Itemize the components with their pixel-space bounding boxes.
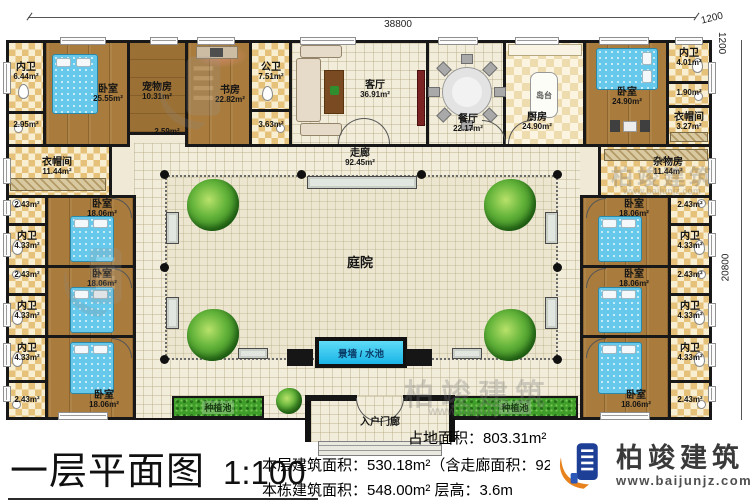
pillow — [602, 290, 617, 299]
computer-icon — [210, 48, 223, 57]
window — [515, 37, 559, 45]
pillow — [93, 290, 108, 299]
room-label-closet-r3: 2.43m² — [668, 396, 712, 405]
dim-top-width: 38800 — [358, 19, 438, 30]
pillow — [93, 345, 108, 354]
room-label-bedroom-l3: 卧室18.06m² — [74, 390, 134, 410]
room-label-bedroom-r1: 卧室18.06m² — [604, 199, 664, 219]
column-dot — [553, 263, 562, 272]
room-label-bedroom-l1: 卧室18.06m² — [72, 199, 132, 219]
pillow — [642, 70, 652, 83]
chair — [461, 54, 473, 64]
room-label-small-top-left: 2.95m² — [4, 121, 48, 130]
pillow — [74, 219, 89, 228]
planter-left: 种植池 — [172, 396, 264, 418]
room-label-small-public-bath: 3.63m² — [249, 121, 293, 130]
kitchen-counter — [508, 44, 582, 56]
bench — [238, 348, 268, 359]
room-label-dining: 餐厅22.17m² — [433, 114, 503, 134]
water-feature: 景墙 / 水池 — [315, 337, 407, 368]
column-dot — [160, 355, 169, 364]
column-dot — [417, 170, 426, 179]
drawing-scale: 1:100 — [223, 454, 306, 492]
pillow — [74, 345, 89, 354]
chair — [610, 120, 620, 132]
window — [58, 412, 108, 420]
dining-table — [442, 67, 492, 117]
table-plant-icon — [330, 86, 339, 95]
pillow — [56, 58, 71, 67]
kitchen-island-label: 岛台 — [536, 90, 552, 101]
window — [599, 37, 649, 45]
window — [438, 37, 478, 45]
bench — [452, 348, 482, 359]
room-label-public-bath: 公卫7.51m² — [249, 62, 293, 82]
window — [3, 158, 11, 184]
room-label-closet-l3: 2.43m² — [5, 396, 49, 405]
room-label-bedroom-top-right: 卧室24.90m² — [595, 87, 659, 107]
room-label-corridor: 走廊92.45m² — [325, 148, 395, 168]
pillow — [621, 290, 636, 299]
page-title: 一层平面图 — [10, 440, 205, 495]
dim-tick — [694, 13, 700, 21]
wardrobe — [10, 178, 106, 191]
dim-line-right — [741, 40, 742, 420]
column-dot — [160, 170, 169, 179]
room-label-closet-r2: 2.43m² — [668, 271, 712, 280]
dim-offset-side: 1200 — [716, 32, 727, 54]
room-label-living: 客厅36.91m² — [340, 80, 410, 100]
wall-stub — [406, 349, 432, 366]
column-dot — [553, 355, 562, 364]
planter-right-label: 种植池 — [499, 401, 530, 414]
room-label-small-top-right: 1.90m² — [667, 89, 711, 98]
dim-right-height: 20800 — [720, 254, 731, 282]
pillow — [74, 290, 89, 299]
bench — [307, 176, 417, 189]
room-label-bedroom-r3: 卧室18.06m² — [606, 390, 666, 410]
pillow — [602, 219, 617, 228]
room-label-hall-small: 2.59m² — [142, 128, 192, 137]
bench — [166, 297, 179, 329]
room-label-closet-r1: 2.43m² — [668, 201, 712, 210]
bench — [166, 212, 179, 244]
window — [600, 412, 650, 420]
window — [708, 158, 716, 184]
sofa — [296, 58, 321, 122]
porch-wall — [403, 395, 455, 401]
wall-stub — [287, 349, 313, 366]
toilet-icon — [262, 86, 273, 101]
room-label-closet-l2: 2.43m² — [5, 271, 49, 280]
column-dot — [553, 170, 562, 179]
room-label-bedroom-l2: 卧室18.06m² — [72, 269, 132, 289]
sofa — [300, 45, 342, 58]
brand-logo-block: 柏竣建筑 www.baijunjz.com — [550, 436, 750, 496]
bench — [545, 297, 558, 329]
pillow — [642, 52, 652, 65]
window — [197, 37, 235, 45]
room-label-cloak-top-right: 衣帽间3.27m² — [665, 112, 713, 132]
window — [675, 37, 703, 45]
drawing-title-block: 一层平面图 1:100 — [8, 440, 318, 500]
room-label-bath-l1: 内卫4.33m² — [5, 231, 49, 251]
dim-offset-top: 1200 — [700, 10, 724, 26]
side-table — [623, 121, 637, 132]
pillow — [621, 345, 636, 354]
room-label-bath-r2: 内卫4.33m² — [668, 301, 712, 321]
brand-name: 柏竣建筑 — [616, 444, 744, 474]
floor-plan-page: 38800 1200 1200 20800 — [0, 0, 750, 504]
pillow — [76, 58, 91, 67]
dim-line-top — [28, 17, 696, 18]
room-label-study: 书房22.82m² — [200, 85, 260, 105]
water-feature-label: 景墙 / 水池 — [338, 346, 384, 360]
room-label-bath-top-right: 内卫4.01m² — [667, 48, 711, 68]
bench — [545, 212, 558, 244]
room-label-bath-r3: 内卫4.33m² — [668, 343, 712, 363]
chair — [428, 87, 440, 97]
room-label-bath-r1: 内卫4.33m² — [668, 231, 712, 251]
toilet-icon — [18, 84, 29, 99]
brand-logo-icon — [554, 438, 610, 494]
column-dot — [297, 170, 306, 179]
column-dot — [160, 263, 169, 272]
chair — [494, 87, 506, 97]
room-label-bath-l2: 内卫4.33m² — [5, 301, 49, 321]
stat-site-area: 占地面积：803.31m² — [408, 427, 546, 448]
window — [60, 37, 106, 45]
brand-site: www.baijunjz.com — [616, 473, 750, 488]
room-label-storage-right: 杂物房11.44m² — [633, 157, 703, 177]
window — [300, 37, 356, 45]
room-label-kitchen: 厨房24.90m² — [502, 112, 572, 132]
pillow — [93, 219, 108, 228]
room-label-bedroom-r2: 卧室18.06m² — [604, 269, 664, 289]
planter-right: 种植池 — [452, 396, 578, 418]
chair — [640, 120, 650, 132]
room-label-bath-top-left: 内卫6.44m² — [4, 62, 48, 82]
room-label-cloak-left: 衣帽间11.44m² — [22, 157, 92, 177]
room-label-pet-room: 宠物房10.31m² — [127, 82, 187, 102]
wardrobe — [670, 132, 708, 142]
pillow — [621, 219, 636, 228]
porch-wall — [305, 395, 357, 401]
planter-left-label: 种植池 — [202, 401, 233, 414]
room-label-closet-l1: 2.43m² — [5, 201, 49, 210]
room-label-bath-l3: 内卫4.33m² — [5, 343, 49, 363]
room-label-courtyard: 庭院 — [325, 256, 395, 271]
window — [150, 37, 178, 45]
sofa — [300, 123, 342, 136]
tv-console — [417, 70, 425, 126]
